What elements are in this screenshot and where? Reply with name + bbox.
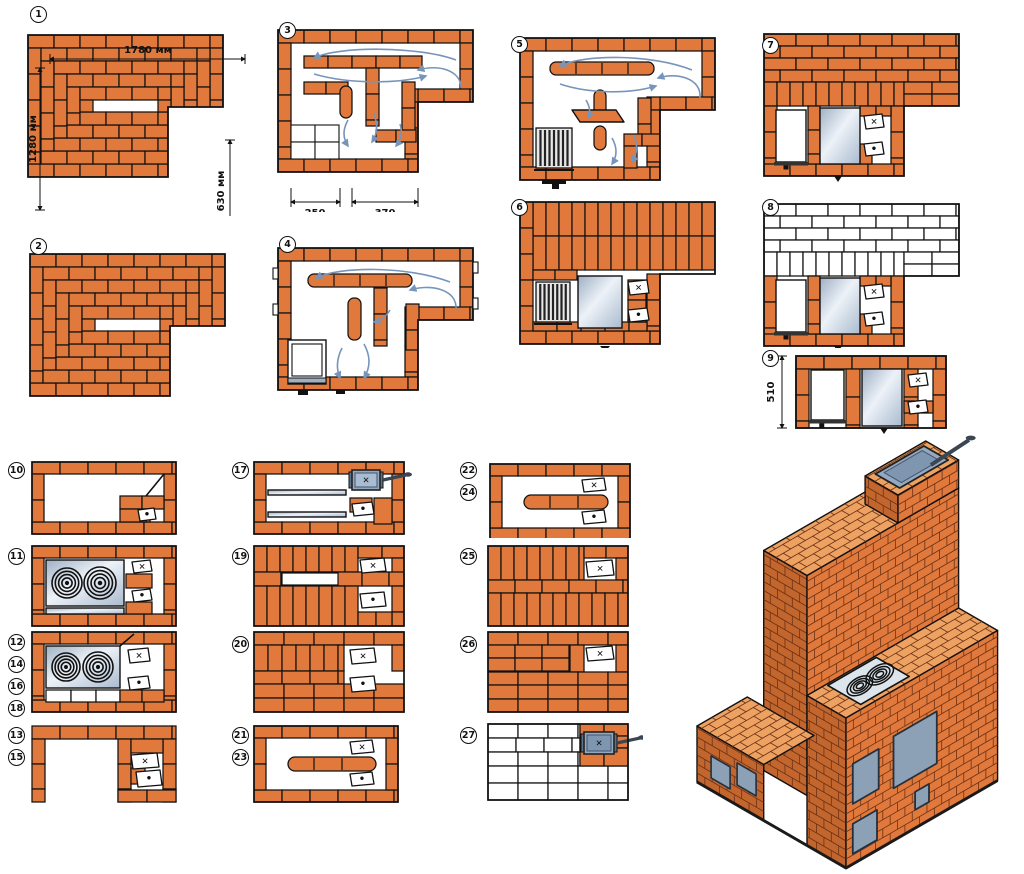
cleanout-marker-icon: ✕ (864, 284, 884, 299)
course-number: 26 (462, 639, 475, 650)
svg-text:•: • (370, 595, 376, 606)
course-number: 13 (10, 730, 23, 741)
course-diagram-7: ✕• (754, 26, 1022, 194)
flue-tongue (524, 495, 608, 509)
cleanout-marker-icon: ✕ (132, 560, 152, 573)
course-number: 19 (234, 551, 247, 562)
svg-text:•: • (146, 774, 152, 785)
svg-text:✕: ✕ (596, 650, 603, 660)
course-diagram-3: 250370 (262, 16, 490, 212)
firebox-door (809, 370, 846, 428)
dimension-label: 1280 мм (28, 115, 39, 163)
cleanout-marker-icon: ✕ (350, 648, 376, 664)
valve-marker-icon: • (864, 142, 884, 156)
course-number: 27 (462, 730, 475, 741)
svg-text:•: • (360, 504, 366, 515)
course-number: 24 (462, 487, 475, 498)
cleanout-marker-icon: ✕ (350, 740, 374, 754)
course-number-badge: 15 (8, 749, 25, 766)
course-diagram-27: ✕ (478, 720, 643, 806)
course-number-badge: 17 (232, 462, 249, 479)
course-diagram-1: 1780 мм1280 мм630 мм1280 мм (6, 2, 262, 216)
course-diagram-10: • (20, 458, 188, 538)
course-number: 2 (35, 241, 42, 252)
cleanout-marker-icon: ✕ (586, 560, 614, 577)
svg-text:•: • (136, 678, 142, 689)
course-number-badge: 12 (8, 634, 25, 651)
cleanout-marker-icon: ✕ (360, 558, 386, 573)
course-diagram-20: ✕• (242, 630, 420, 716)
course-number: 8 (767, 202, 774, 213)
course-number-badge: 27 (460, 727, 477, 744)
course-number-badge: 22 (460, 462, 477, 479)
course-number-badge: 5 (511, 36, 528, 53)
svg-text:✕: ✕ (635, 284, 642, 294)
svg-text:•: • (635, 310, 641, 321)
course-number-badge: 19 (232, 548, 249, 565)
dimension-label: 370 (375, 208, 396, 212)
course-number: 6 (516, 202, 523, 213)
metal-plate (862, 369, 902, 426)
course-number: 20 (234, 639, 247, 650)
course-number: 4 (284, 239, 291, 250)
valve-marker-icon: • (864, 312, 884, 326)
course-number-badge: 13 (8, 727, 25, 744)
course-number: 12 (10, 637, 23, 648)
cleanout-marker-icon: ✕ (864, 114, 884, 129)
course-diagram-2 (12, 240, 252, 426)
dimension-label: 1780 мм (124, 45, 172, 56)
svg-text:•: • (591, 512, 597, 523)
course-number-badge: 21 (232, 727, 249, 744)
dimension-label: 630 мм (216, 171, 227, 212)
cleanout-marker-icon: ✕ (128, 648, 150, 663)
course-number-badge: 10 (8, 462, 25, 479)
course-diagram-12: ✕• (20, 630, 188, 716)
course-number: 22 (462, 465, 475, 476)
metal-plate (46, 608, 124, 614)
valve-marker-icon: • (138, 508, 156, 521)
stove-courses-diagram: 1780 мм1280 мм630 мм1280 мм250370✕•✕•✕•✕… (0, 0, 1024, 874)
svg-text:•: • (144, 510, 150, 521)
course-diagram-4 (262, 232, 492, 424)
svg-text:✕: ✕ (358, 743, 365, 753)
grate-icon (534, 128, 574, 170)
damper-icon: ✕ (581, 732, 643, 754)
course-number-badge: 8 (762, 199, 779, 216)
course-number: 9 (767, 353, 774, 364)
cleanout-marker-icon: ✕ (908, 373, 928, 387)
course-diagram-6: ✕• (506, 196, 744, 348)
metal-plate (268, 512, 346, 517)
course-number-badge: 9 (762, 350, 779, 367)
course-number: 1 (35, 9, 42, 20)
course-diagram-5 (506, 26, 744, 194)
metal-plate (820, 278, 860, 334)
svg-text:✕: ✕ (870, 118, 877, 128)
firebox-door (774, 110, 808, 170)
metal-plate (268, 490, 346, 495)
cleanout-marker-icon: ✕ (131, 753, 159, 769)
course-number: 11 (10, 551, 23, 562)
course-number-badge: 25 (460, 548, 477, 565)
flue-tongue (288, 757, 376, 771)
course-number: 25 (462, 551, 475, 562)
svg-text:✕: ✕ (369, 562, 376, 572)
valve-marker-icon: • (132, 589, 152, 602)
course-number: 7 (767, 40, 774, 51)
course-diagram-22: ✕• (478, 458, 643, 538)
cleanout-marker-icon: ✕ (628, 280, 649, 295)
svg-text:✕: ✕ (362, 476, 369, 486)
svg-text:•: • (915, 402, 921, 413)
course-number: 17 (234, 465, 247, 476)
course-number-badge: 3 (279, 22, 296, 39)
valve-marker-icon: • (582, 510, 606, 524)
course-number: 5 (516, 39, 523, 50)
svg-text:✕: ✕ (870, 288, 877, 298)
svg-text:✕: ✕ (596, 565, 603, 575)
svg-text:✕: ✕ (138, 563, 145, 573)
svg-text:✕: ✕ (359, 652, 366, 662)
course-number: 18 (10, 703, 23, 714)
course-diagram-25: ✕ (478, 542, 643, 630)
firebox-door (774, 280, 808, 340)
valve-marker-icon: • (352, 502, 374, 516)
cleanout-marker-icon: ✕ (586, 646, 614, 661)
course-diagram-19: ✕• (242, 542, 420, 630)
metal-plate (820, 108, 860, 164)
valve-marker-icon: • (350, 676, 376, 692)
svg-text:•: • (871, 314, 877, 325)
grate-icon (534, 282, 572, 324)
valve-marker-icon: • (350, 772, 374, 786)
metal-plate (578, 276, 622, 328)
svg-text:•: • (360, 679, 366, 690)
course-diagram-11: ✕• (20, 542, 188, 630)
course-diagram-13: ✕• (20, 720, 188, 806)
course-number: 21 (234, 730, 247, 741)
svg-text:✕: ✕ (590, 481, 597, 491)
valve-marker-icon: • (908, 400, 928, 414)
svg-text:✕: ✕ (135, 652, 142, 662)
stove-3d-view (688, 432, 1024, 874)
valve-marker-icon: • (628, 308, 649, 322)
course-number-badge: 20 (232, 636, 249, 653)
valve-marker-icon: • (128, 676, 150, 690)
dimension-label: 250 (305, 208, 326, 212)
valve-marker-icon: • (136, 770, 162, 787)
course-number: 14 (10, 659, 23, 670)
course-diagram-26: ✕ (478, 630, 643, 716)
cleanout-marker-icon: ✕ (582, 478, 606, 492)
course-number-badge: 7 (762, 37, 779, 54)
course-number: 15 (10, 752, 23, 763)
course-number-badge: 23 (232, 749, 249, 766)
svg-text:✕: ✕ (141, 757, 148, 767)
dimension-label: 510 (766, 382, 777, 403)
svg-text:✕: ✕ (914, 376, 921, 386)
course-number-badge: 16 (8, 678, 25, 695)
svg-text:•: • (139, 591, 145, 602)
course-diagram-21: ✕• (242, 720, 420, 806)
course-number-badge: 2 (30, 238, 47, 255)
course-number-badge: 11 (8, 548, 25, 565)
course-diagram-8: ✕• (754, 196, 1022, 348)
svg-text:✕: ✕ (595, 739, 602, 749)
svg-text:•: • (871, 144, 877, 155)
course-number: 16 (10, 681, 23, 692)
course-diagram-17: ✕• (242, 458, 420, 538)
course-number-badge: 24 (460, 484, 477, 501)
svg-text:•: • (359, 774, 365, 785)
valve-marker-icon: • (360, 592, 386, 608)
course-number-badge: 26 (460, 636, 477, 653)
course-number-badge: 6 (511, 199, 528, 216)
course-number-badge: 1 (30, 6, 47, 23)
course-number: 3 (284, 25, 291, 36)
course-number-badge: 4 (279, 236, 296, 253)
course-number-badge: 14 (8, 656, 25, 673)
course-number: 23 (234, 752, 247, 763)
course-number: 10 (10, 465, 23, 476)
course-number-badge: 18 (8, 700, 25, 717)
